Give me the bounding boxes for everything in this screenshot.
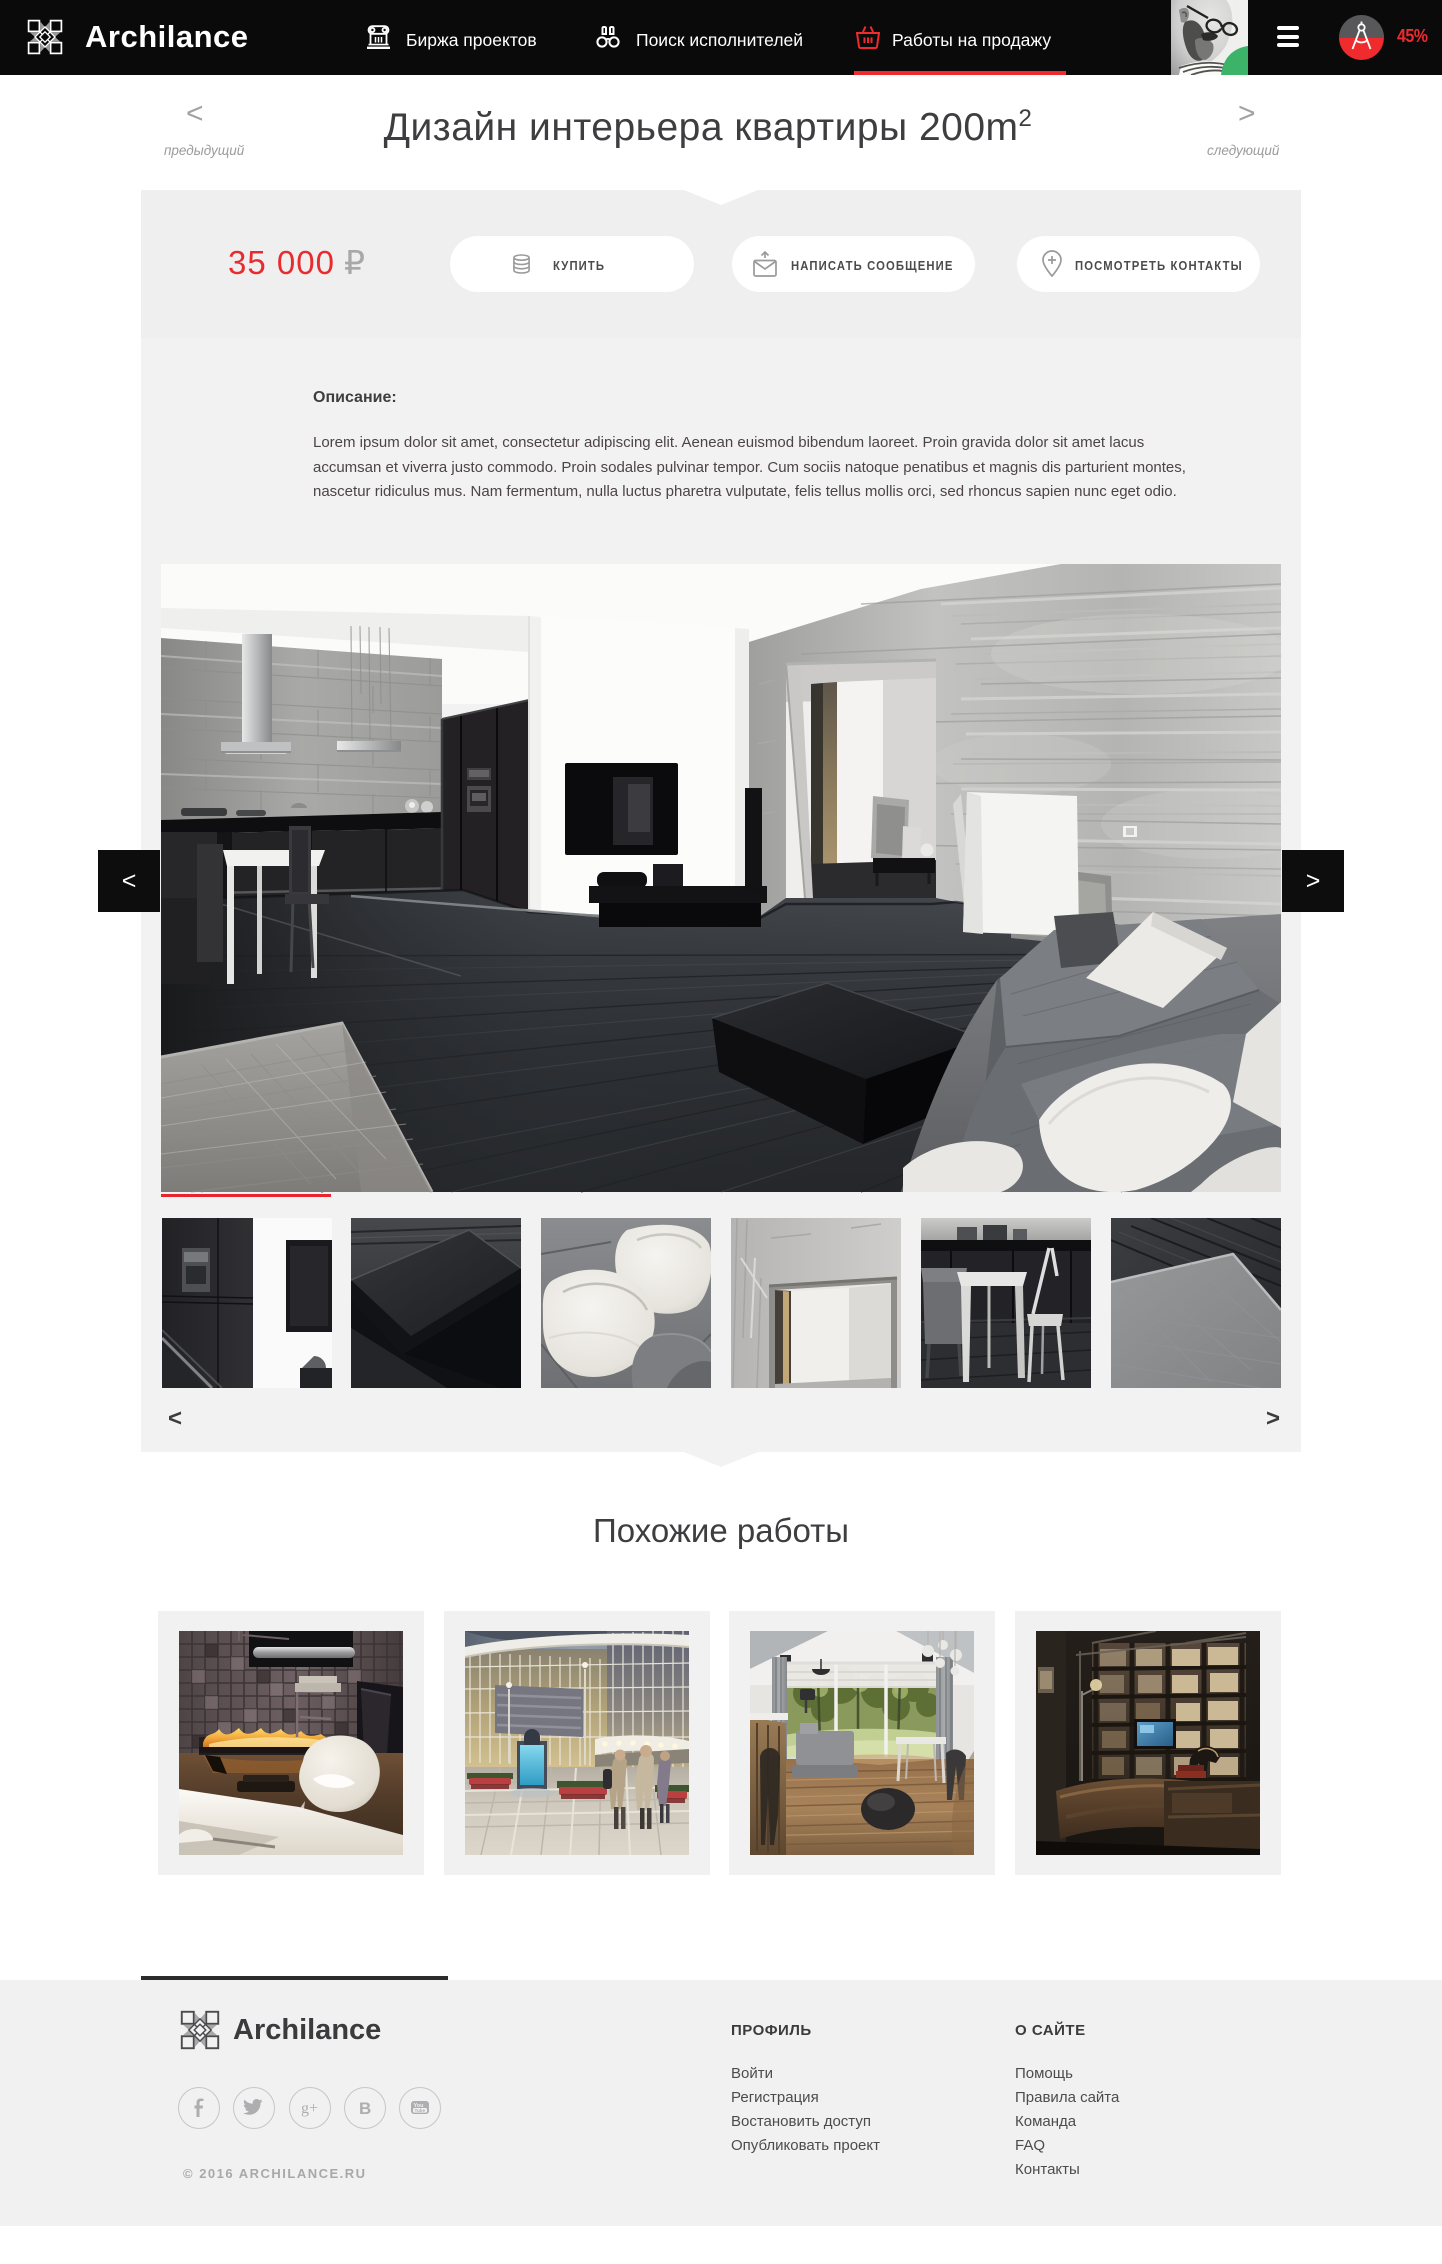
svg-text:B: B — [359, 2099, 371, 2118]
svg-text:Tube: Tube — [415, 2108, 426, 2113]
svg-text:g+: g+ — [301, 2100, 318, 2117]
